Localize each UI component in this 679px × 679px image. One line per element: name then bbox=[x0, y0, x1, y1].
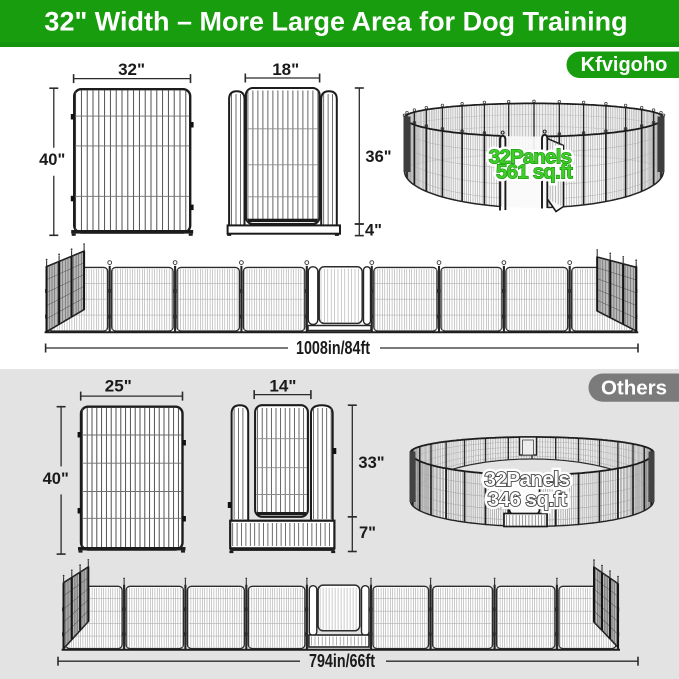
svg-text:32" Width – More Large Area fo: 32" Width – More Large Area for Dog Trai… bbox=[44, 7, 627, 37]
svg-text:794in/66ft: 794in/66ft bbox=[309, 650, 375, 671]
svg-text:18": 18" bbox=[272, 60, 299, 79]
svg-text:33": 33" bbox=[358, 454, 384, 472]
svg-text:1008in/84ft: 1008in/84ft bbox=[296, 337, 370, 358]
svg-text:25": 25" bbox=[105, 377, 132, 396]
svg-text:Others: Others bbox=[601, 377, 667, 400]
svg-text:36": 36" bbox=[365, 148, 391, 166]
svg-text:40": 40" bbox=[39, 151, 65, 169]
svg-text:40": 40" bbox=[43, 470, 69, 488]
svg-text:346 sq.ft: 346 sq.ft bbox=[488, 488, 567, 511]
svg-text:561 sq.ft: 561 sq.ft bbox=[496, 161, 573, 184]
svg-text:14": 14" bbox=[269, 377, 296, 396]
svg-text:32": 32" bbox=[118, 60, 145, 79]
svg-text:4": 4" bbox=[365, 222, 382, 240]
svg-text:Kfvigoho: Kfvigoho bbox=[581, 54, 668, 76]
svg-text:7": 7" bbox=[359, 524, 376, 542]
